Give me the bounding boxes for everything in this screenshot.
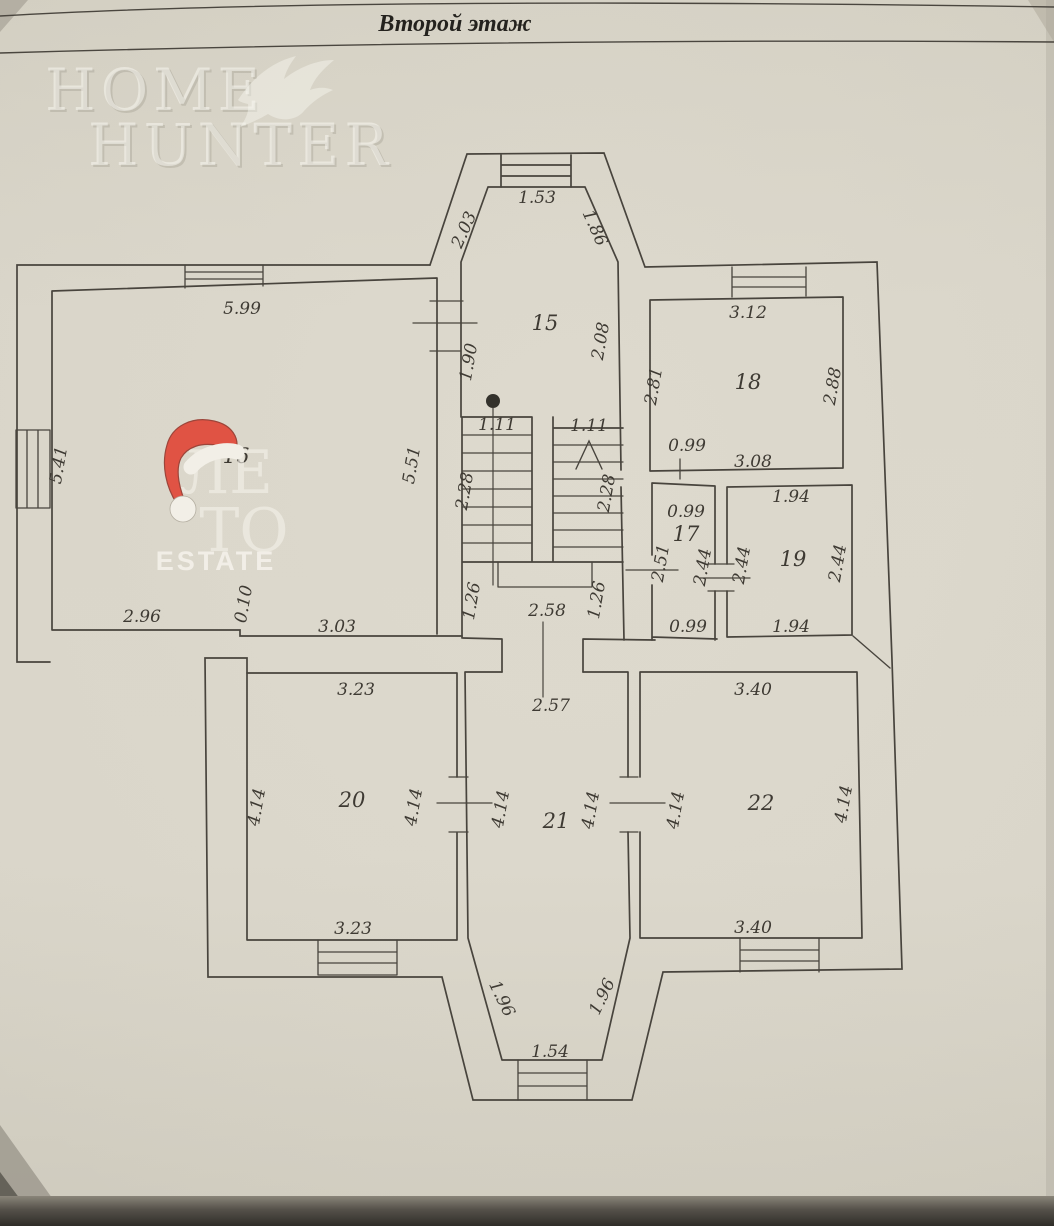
dim-porch-bottom: 1.54 [531, 1042, 569, 1062]
dim-landing-width: 2.58 [527, 601, 566, 621]
dim-16-top: 5.99 [223, 299, 261, 319]
dim-16-bottom-right: 3.03 [318, 617, 356, 637]
dim-18-door: 0.99 [668, 436, 706, 456]
dim-18-bottom: 3.08 [734, 452, 772, 472]
dim-19-top: 1.94 [772, 487, 810, 507]
room-18-number: 18 [735, 370, 762, 394]
floor-plan-canvas: Второй этаж [0, 0, 1054, 1226]
room-15-number: 15 [532, 311, 559, 335]
watermark-word2: HUNTER [88, 111, 393, 179]
room-22-number: 22 [747, 791, 775, 815]
leto-estate-logo: ЛЕ ТО ESTATE [156, 420, 289, 576]
scanned-floor-plan-page: Второй этаж [0, 0, 1054, 1226]
room-20-number: 20 [338, 788, 366, 812]
dim-19-bottom: 1.94 [772, 617, 810, 637]
dim-15-top: 1.53 [518, 188, 556, 208]
dim-21-top: 2.57 [531, 696, 570, 716]
dim-17-top: 0.99 [667, 502, 705, 522]
dim-stair-left-width: 1.11 [478, 415, 516, 435]
logo-caption: ESTATE [156, 546, 277, 576]
room-19-number: 19 [780, 547, 807, 571]
dim-18-top: 3.12 [729, 303, 767, 323]
dim-20-bottom: 3.23 [334, 919, 372, 939]
section-dot [486, 394, 500, 408]
page-title: Второй этаж [377, 11, 531, 37]
dim-stair-right-width: 1.11 [570, 416, 608, 436]
room-17-number: 17 [673, 522, 700, 546]
dim-22-top: 3.40 [734, 680, 772, 700]
dim-20-top: 3.23 [337, 680, 375, 700]
dim-17-bottom: 0.99 [669, 617, 707, 637]
dim-16-bottom-left: 2.96 [122, 607, 161, 627]
dim-22-bottom: 3.40 [734, 918, 772, 938]
room-21-number: 21 [542, 809, 570, 833]
